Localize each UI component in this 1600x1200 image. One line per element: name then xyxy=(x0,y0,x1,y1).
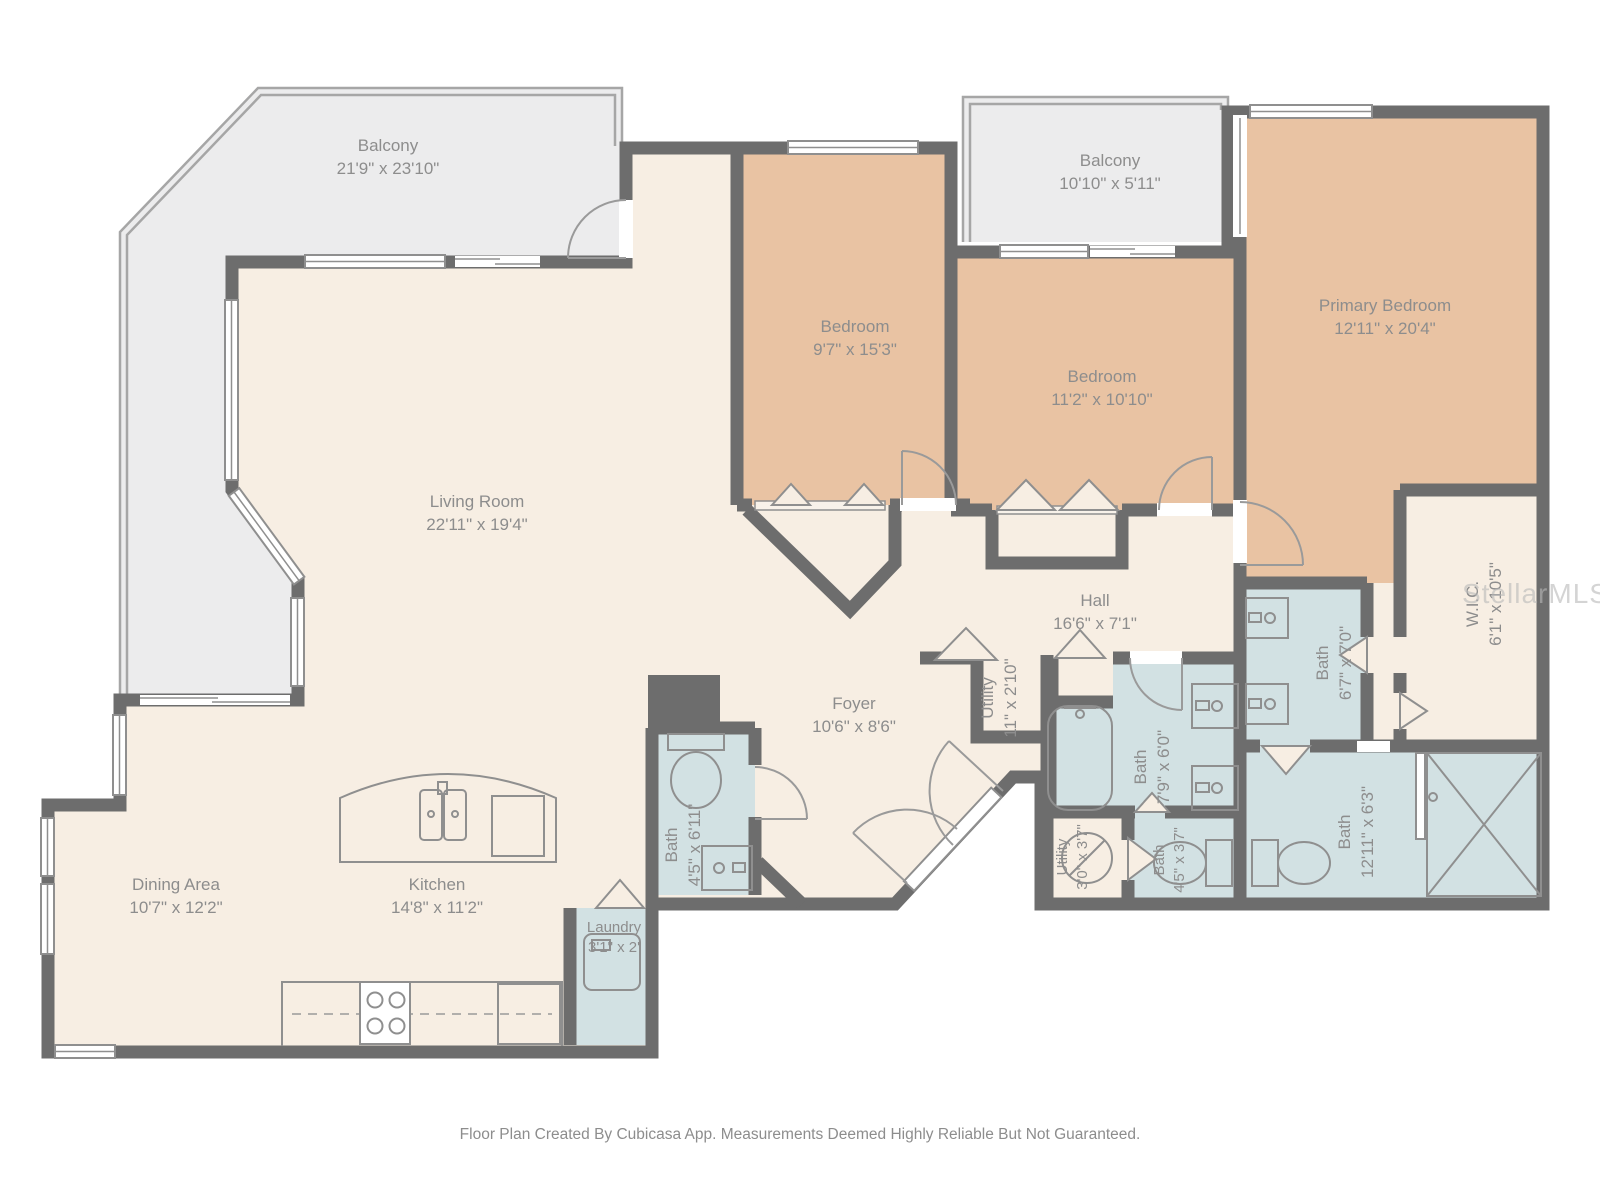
room-name: Bath xyxy=(1129,730,1152,804)
room-label-laundry: Laundry3'1" x 2' xyxy=(587,918,641,958)
window xyxy=(1250,105,1372,118)
room-name: Laundry xyxy=(587,918,641,938)
footer-disclaimer: Floor Plan Created By Cubicasa App. Meas… xyxy=(0,1126,1600,1144)
room-dims: 6'7" x 7'0" xyxy=(1334,626,1357,700)
room-label-bath-large: Bath12'11" x 6'3" xyxy=(1333,786,1379,878)
door-gap xyxy=(900,498,956,511)
room-dims: 14'8" x 11'2" xyxy=(391,896,483,919)
room-dims: 7'9" x 6'0" xyxy=(1152,730,1175,804)
window xyxy=(305,255,445,268)
room-name: Bath xyxy=(660,804,683,887)
room-label-bedroom-2: Bedroom11'2" x 10'10" xyxy=(1051,365,1152,411)
door-gap xyxy=(1130,651,1182,664)
room-label-balcony-main: Balcony21'9" x 23'10" xyxy=(337,134,440,180)
room-dims: 11" x 2'10" xyxy=(999,658,1022,737)
door-gap xyxy=(1233,500,1247,563)
watermark: StellarMLS xyxy=(1462,578,1600,610)
room-label-bath-foyer: Bath4'5" x 6'11" xyxy=(660,804,706,887)
room-dims: 3'0" x 3'7" xyxy=(1073,824,1093,890)
room-dims: 3'1" x 2' xyxy=(587,938,641,958)
window xyxy=(113,715,126,795)
room-label-living-room: Living Room22'11" x 19'4" xyxy=(426,490,527,536)
window xyxy=(225,300,238,480)
room-name: Utility xyxy=(976,658,999,737)
room-label-primary-bedroom: Primary Bedroom12'11" x 20'4" xyxy=(1319,294,1451,340)
room-label-dining-area: Dining Area10'7" x 12'2" xyxy=(129,873,222,919)
room-name: Living Room xyxy=(426,490,527,513)
sliding-door xyxy=(1090,246,1175,257)
room-name: Primary Bedroom xyxy=(1319,294,1451,317)
room-dims: 22'11" x 19'4" xyxy=(426,513,527,536)
door-gap xyxy=(619,200,633,258)
room-dims: 10'7" x 12'2" xyxy=(129,896,222,919)
room-name: Bedroom xyxy=(813,315,897,338)
window xyxy=(41,884,54,954)
sliding-door xyxy=(140,695,290,705)
room-name: Balcony xyxy=(1059,149,1160,172)
room-name: Bedroom xyxy=(1051,365,1152,388)
room-name: Bath xyxy=(1333,786,1356,878)
room-name: Dining Area xyxy=(129,873,222,896)
room-dims: 10'10" x 5'11" xyxy=(1059,172,1160,195)
stove xyxy=(360,982,410,1044)
sliding-door xyxy=(455,256,540,267)
room-label-hall: Hall16'6" x 7'1" xyxy=(1053,589,1137,635)
room-name: Bath xyxy=(1311,626,1334,700)
room-dims: 12'11" x 6'3" xyxy=(1356,786,1379,878)
door-gap xyxy=(1157,503,1212,516)
room-dims: 4'5" x 6'11" xyxy=(683,804,706,887)
window xyxy=(788,141,918,154)
window xyxy=(55,1045,115,1058)
room-label-balcony-2: Balcony10'10" x 5'11" xyxy=(1059,149,1160,195)
window xyxy=(291,598,304,686)
room-label-utility-hall: Utility11" x 2'10" xyxy=(976,658,1022,737)
room-label-utility-small: Utility3'0" x 3'7" xyxy=(1053,824,1093,890)
room-name: Kitchen xyxy=(391,873,483,896)
room-label-bath-small: Bath4'5" x 3'7" xyxy=(1150,827,1190,893)
room-dims: 21'9" x 23'10" xyxy=(337,157,440,180)
room-label-bedroom-1: Bedroom9'7" x 15'3" xyxy=(813,315,897,361)
floorplan-svg xyxy=(0,0,1600,1200)
room-dims: 12'11" x 20'4" xyxy=(1319,317,1451,340)
window xyxy=(41,818,54,876)
door-gap xyxy=(1357,741,1390,752)
room-name: Bath xyxy=(1150,827,1170,893)
room-name: Hall xyxy=(1053,589,1137,612)
room-dims: 10'6" x 8'6" xyxy=(812,715,896,738)
room-dims: 4'5" x 3'7" xyxy=(1170,827,1190,893)
room-dims: 11'2" x 10'10" xyxy=(1051,388,1152,411)
room-label-bath-hall: Bath7'9" x 6'0" xyxy=(1129,730,1175,804)
floorplan-canvas: Balcony21'9" x 23'10" Balcony10'10" x 5'… xyxy=(0,0,1600,1200)
room-label-kitchen: Kitchen14'8" x 11'2" xyxy=(391,873,483,919)
room-label-bath-primary: Bath6'7" x 7'0" xyxy=(1311,626,1357,700)
window xyxy=(1000,245,1088,258)
room-name: Balcony xyxy=(337,134,440,157)
room-name: Foyer xyxy=(812,692,896,715)
room-name: Utility xyxy=(1053,824,1073,890)
room-label-foyer: Foyer10'6" x 8'6" xyxy=(812,692,896,738)
room-dims: 9'7" x 15'3" xyxy=(813,338,897,361)
room-dims: 16'6" x 7'1" xyxy=(1053,612,1137,635)
